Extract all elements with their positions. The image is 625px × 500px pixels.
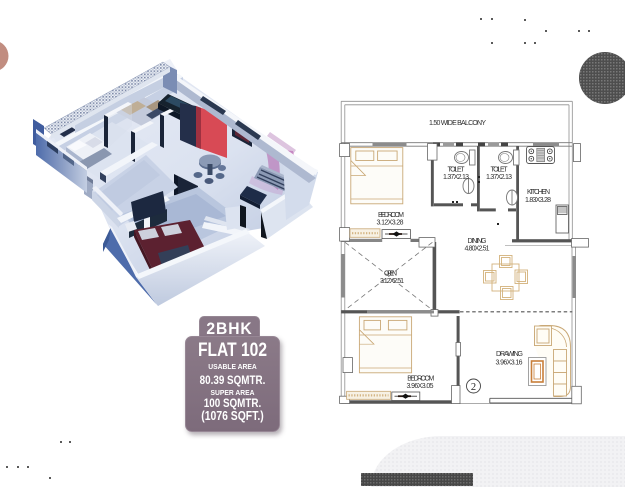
svg-text:DINING: DINING	[468, 238, 487, 245]
svg-text:2: 2	[471, 382, 476, 393]
svg-text:3.12X3.28: 3.12X3.28	[377, 220, 404, 227]
svg-text:3.96X3.16: 3.96X3.16	[496, 360, 523, 367]
svg-text:1.37X2.13: 1.37X2.13	[486, 174, 512, 181]
svg-text:1.50 WIDE BALCONY: 1.50 WIDE BALCONY	[429, 120, 486, 127]
svg-text:TOILET: TOILET	[448, 166, 466, 173]
svg-text:4.80X2.51: 4.80X2.51	[465, 245, 490, 252]
svg-text:3.12X2.51: 3.12X2.51	[380, 278, 404, 285]
svg-text:BEDROOM: BEDROOM	[378, 212, 404, 219]
svg-text:TOILET: TOILET	[491, 166, 509, 173]
svg-text:DRAWING: DRAWING	[496, 351, 523, 358]
svg-text:3.96X3.05: 3.96X3.05	[407, 383, 434, 390]
svg-text:OPEN: OPEN	[384, 271, 397, 278]
svg-text:1.37X2.13: 1.37X2.13	[443, 174, 469, 181]
svg-text:BEDROOM: BEDROOM	[407, 376, 434, 383]
svg-text:KITCHEN: KITCHEN	[527, 189, 550, 196]
svg-text:1.83X3.28: 1.83X3.28	[525, 197, 551, 204]
